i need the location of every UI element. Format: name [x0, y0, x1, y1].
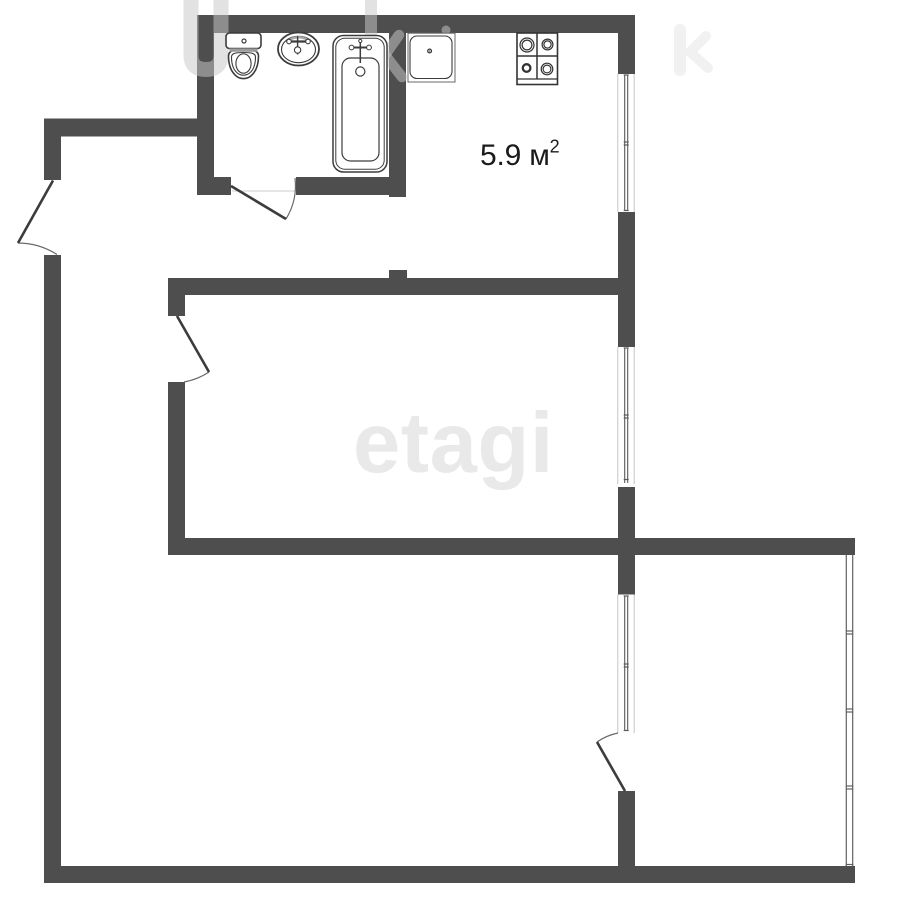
svg-text:etagi: etagi [353, 396, 554, 491]
svg-text:5.9 м2: 5.9 м2 [480, 137, 560, 173]
